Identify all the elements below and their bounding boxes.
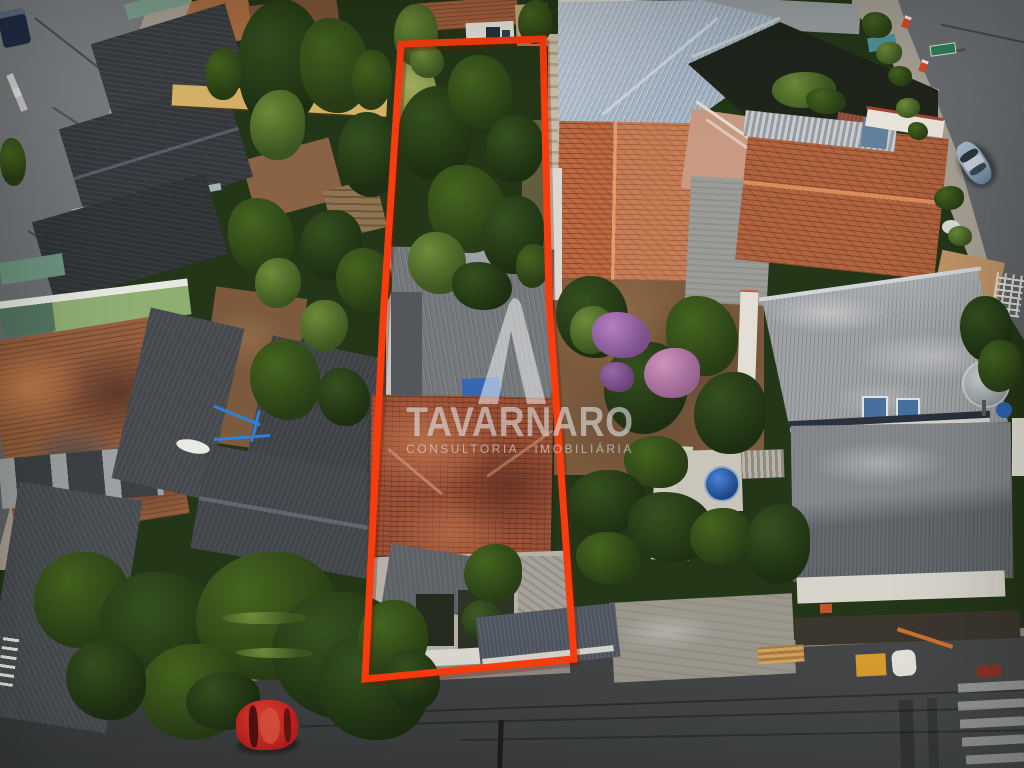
- tree-blob: [336, 248, 392, 312]
- aerial-photo: TAVARNARO CONSULTORIA IMOBILIÁRIA: [0, 0, 1024, 768]
- tree-blob: [386, 650, 440, 710]
- tree-blob: [576, 532, 640, 584]
- tree-blob: [806, 88, 846, 114]
- tree-blob: [862, 12, 892, 38]
- tree-blob: [518, 0, 552, 44]
- tree-blob: [338, 112, 398, 197]
- flowering-shrub: [644, 348, 700, 398]
- tree-blob: [690, 508, 750, 564]
- tree-blob: [352, 50, 392, 110]
- tree-blob: [250, 340, 320, 420]
- vegetation-layer: [0, 0, 1024, 768]
- tree-blob: [948, 226, 972, 246]
- tree-blob: [888, 66, 912, 86]
- tree-blob: [978, 340, 1022, 392]
- flowering-shrub: [592, 312, 650, 358]
- tree-blob: [255, 258, 301, 308]
- tree-blob: [746, 504, 810, 584]
- tree-blob: [410, 44, 444, 78]
- tree-blob: [318, 368, 370, 426]
- flowering-shrub: [600, 362, 634, 392]
- tree-blob: [464, 544, 522, 602]
- tree-blob: [486, 115, 544, 183]
- red-parked-car: [231, 693, 303, 761]
- tree-blob: [908, 122, 928, 140]
- tree-blob: [66, 640, 146, 720]
- tree-blob: [300, 300, 348, 352]
- tree-blob: [0, 138, 26, 186]
- tree-blob: [516, 244, 550, 288]
- tree-blob: [205, 48, 241, 100]
- tree-blob: [896, 98, 920, 118]
- tree-blob: [876, 42, 902, 64]
- tree-blob: [694, 372, 766, 454]
- tree-blob: [250, 90, 305, 160]
- tree-blob: [222, 612, 306, 624]
